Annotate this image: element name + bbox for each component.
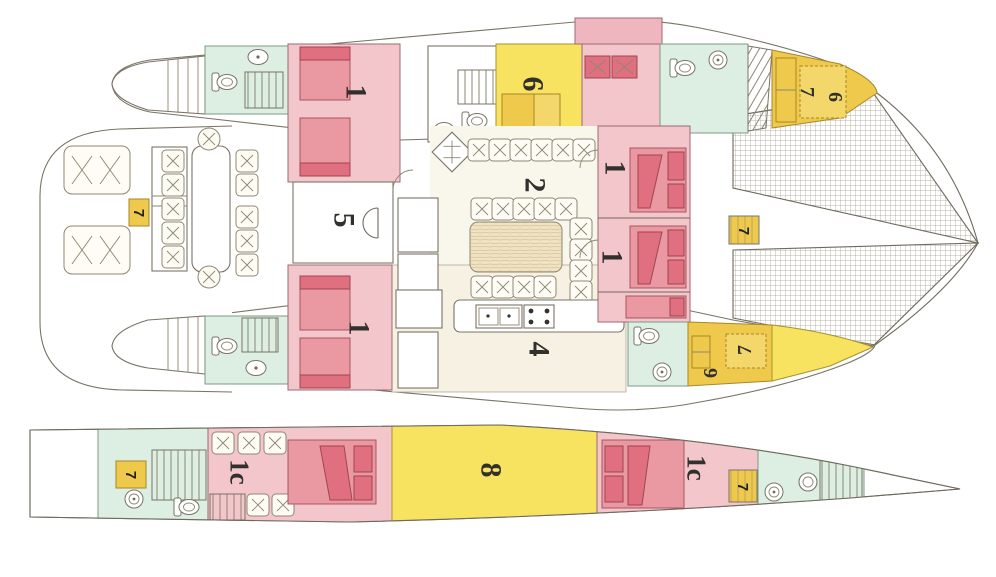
room-label-steps: 7 <box>734 483 751 491</box>
shower-icon <box>458 70 500 104</box>
shower-icon <box>242 318 278 352</box>
room-label-cabin1: 1 <box>599 161 632 176</box>
sink-icon <box>246 361 266 376</box>
stove <box>524 305 554 328</box>
stern-tip-port <box>112 56 205 114</box>
toilet-icon <box>670 59 695 77</box>
room-label-bow7: 7 <box>734 345 756 355</box>
sun-lounger <box>64 226 130 274</box>
room-label-1c: 1c <box>682 455 712 481</box>
room-label-salon: 2 <box>519 178 552 193</box>
bed <box>502 94 534 130</box>
room-label-bow7: 7 <box>796 87 818 97</box>
stool <box>198 128 220 150</box>
sink-icon <box>125 490 143 508</box>
room-label-cabin1: 1 <box>343 321 376 336</box>
bathroom-port-fwd <box>660 44 748 133</box>
sun-lounger <box>64 146 130 194</box>
room-label-steps: 7 <box>130 209 147 217</box>
room-label-galley: 4 <box>523 342 556 357</box>
toilet-icon <box>174 498 199 516</box>
stool <box>198 266 220 288</box>
salon-table <box>470 222 562 272</box>
catamaran-deck-plan: 1 1 1 1 2 4 5 6 7 6 7 6 7 7 <box>0 0 996 577</box>
locker <box>210 494 245 520</box>
room-label-1c: 1c <box>225 459 255 485</box>
cockpit-table <box>192 146 230 272</box>
room-label-steps: 7 <box>735 227 752 235</box>
room-label-cabin1: 1 <box>340 85 373 100</box>
deck-plan-drawing: 1 1 1 1 2 4 5 6 7 6 7 6 7 7 <box>0 0 996 577</box>
side-locker <box>575 18 662 44</box>
room-label-cabin1: 1 <box>596 250 629 265</box>
toilet-icon <box>634 327 659 345</box>
room-label-nav: 5 <box>328 213 361 228</box>
sink-icon <box>709 51 727 69</box>
mid-cabins <box>580 126 759 322</box>
sink-icon <box>765 483 783 501</box>
main-deck-plan: 1 1 1 1 2 4 5 6 7 6 7 6 7 7 <box>40 18 978 410</box>
galley-cabinet <box>398 332 438 388</box>
hatch-icon <box>799 473 817 491</box>
toilet-icon <box>212 337 237 355</box>
net-upper <box>733 94 978 243</box>
shower-icon <box>245 72 283 108</box>
room-label-8: 8 <box>475 463 508 478</box>
room-label-bow6: 6 <box>824 92 846 102</box>
lower-deck-plan: 1c 8 1c 7 7 <box>30 420 960 524</box>
stairs-icon <box>820 452 862 500</box>
trampoline-nets <box>733 93 978 346</box>
stairs-icon <box>152 450 206 500</box>
sink-icon <box>653 363 671 381</box>
toilet-icon <box>212 73 237 91</box>
room-label-bow6: 6 <box>700 368 722 378</box>
room-label-cabin6: 6 <box>517 77 550 92</box>
room-label-steps: 7 <box>122 471 139 479</box>
console <box>398 198 438 252</box>
galley-cabinet <box>396 290 442 328</box>
galley-sink <box>476 305 522 328</box>
sink-icon <box>248 50 268 65</box>
